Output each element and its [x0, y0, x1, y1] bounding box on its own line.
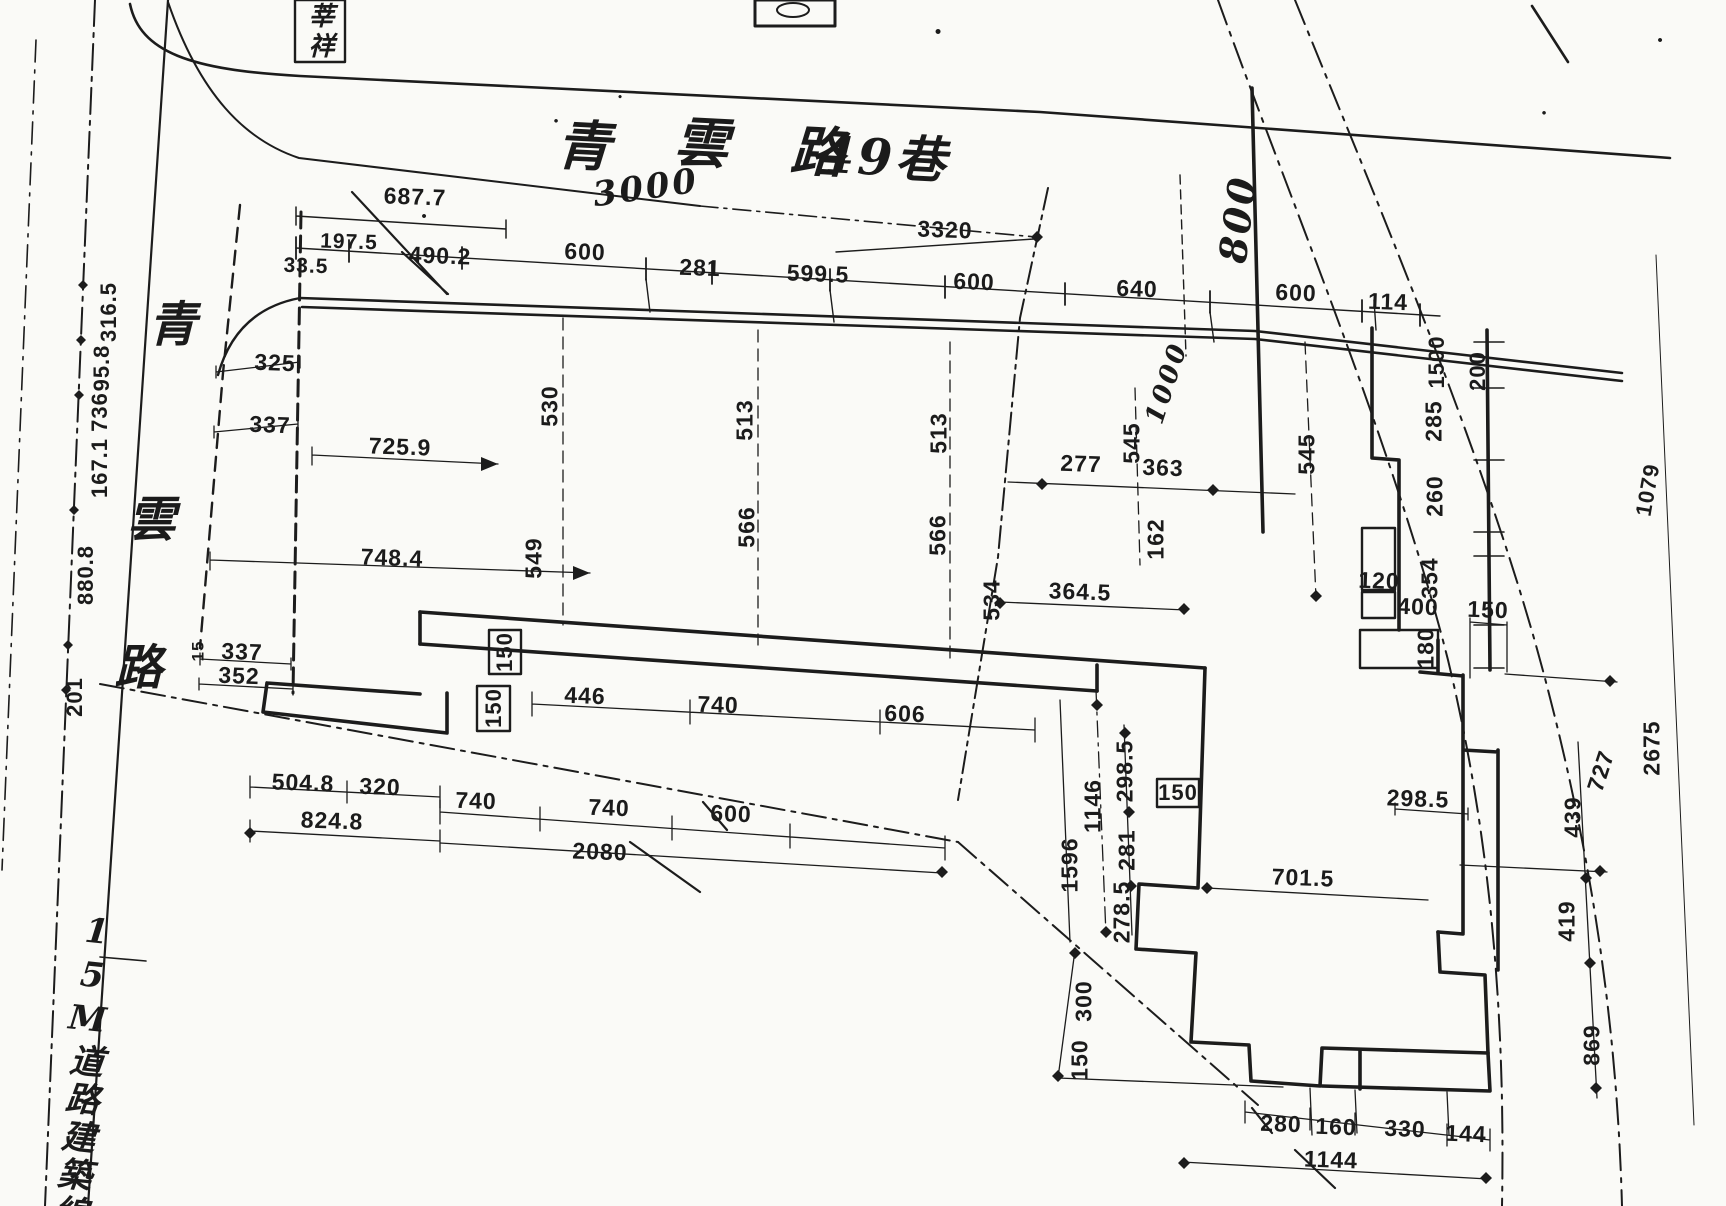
dim-285: 285 [1423, 400, 1446, 441]
dim-600-d: 600 [710, 802, 752, 826]
lane-name-char-4: 49巷 [818, 130, 949, 187]
corner-box-text: 莘祥 [306, 2, 332, 62]
dim-364-5: 364.5 [1048, 579, 1111, 604]
dim-566-a: 566 [736, 506, 759, 547]
dim-740-a: 740 [697, 693, 739, 717]
dim-160: 160 [1315, 1115, 1357, 1139]
dim-513-b: 513 [928, 412, 951, 453]
dim-748-4: 748.4 [360, 545, 423, 570]
road-name-char-1: 青 [148, 301, 199, 349]
dim-144: 144 [1445, 1122, 1487, 1146]
dim-281-b: 281 [1116, 829, 1139, 870]
dim-1000: 1000 [1142, 339, 1193, 427]
dim-325: 325 [254, 351, 296, 375]
dim-640: 640 [1116, 277, 1158, 301]
dim-330: 330 [1384, 1117, 1426, 1141]
road-name-char-3: 路 [114, 644, 165, 692]
site-plan-scan: 青雲路49巷30008001000青雲路莘祥15M道路建築線687.7197.5… [0, 0, 1726, 1206]
dim-400: 400 [1397, 595, 1439, 619]
dim-150-e: 150 [1467, 598, 1509, 622]
dim-150-box-c: 150 [1158, 782, 1198, 804]
dim-701-5: 701.5 [1271, 865, 1334, 890]
dim-549: 549 [523, 537, 546, 578]
dim-120: 120 [1358, 569, 1400, 593]
dim-180: 180 [1415, 627, 1438, 668]
dim-1144: 1144 [1304, 1148, 1359, 1173]
dim-530: 530 [539, 385, 562, 426]
dim-278-5: 278.5 [1111, 881, 1134, 944]
dim-298-5-b: 298.5 [1386, 786, 1449, 811]
dim-150-d: 150 [1069, 1039, 1092, 1080]
dim-150-box-b: 150 [483, 688, 505, 728]
dim-33-5: 33.5 [283, 255, 329, 278]
dim-337-b: 337 [221, 640, 263, 664]
dim-725-9: 725.9 [368, 434, 431, 459]
dim-298-5-a: 298.5 [1114, 740, 1137, 803]
dim-534: 534 [981, 579, 1004, 620]
dim-600-b: 600 [953, 270, 995, 294]
dim-162: 162 [1145, 518, 1168, 559]
dim-687-7: 687.7 [383, 184, 446, 209]
dim-727: 727 [1584, 748, 1619, 794]
dim-504-8: 504.8 [271, 770, 334, 795]
dim-419: 419 [1556, 900, 1579, 941]
dim-2675: 2675 [1641, 720, 1664, 775]
dim-869: 869 [1581, 1024, 1604, 1065]
dim-280: 280 [1260, 1112, 1302, 1136]
road-name-char-2: 雲 [127, 496, 178, 544]
dim-300: 300 [1073, 980, 1096, 1021]
dim-599-5: 599.5 [786, 261, 849, 286]
dim-352: 352 [218, 664, 260, 688]
dim-316-5: 316.5 [98, 282, 120, 342]
road-building-line-text: 15M道路建築線 [48, 910, 115, 1206]
dim-197-5: 197.5 [320, 231, 378, 254]
dim-800: 800 [1214, 173, 1262, 265]
dim-606: 606 [884, 702, 926, 726]
dim-439: 439 [1562, 796, 1585, 837]
dimension-labels-layer: 青雲路49巷30008001000青雲路莘祥15M道路建築線687.7197.5… [0, 0, 1726, 1206]
dim-600-c: 600 [1275, 281, 1317, 305]
dim-354: 354 [1419, 557, 1442, 598]
dim-15: 15 [190, 641, 207, 662]
dim-880-8: 880.8 [75, 545, 97, 605]
dim-513-a: 513 [734, 399, 757, 440]
dim-337-a: 337 [249, 413, 291, 437]
dim-200: 200 [1467, 351, 1489, 391]
dim-2080: 2080 [572, 840, 628, 865]
dim-277: 277 [1060, 452, 1102, 476]
dim-740-c: 740 [588, 796, 630, 820]
dim-201: 201 [64, 677, 86, 717]
dim-114: 114 [1368, 290, 1409, 314]
dim-545-b: 545 [1296, 433, 1319, 474]
dim-363: 363 [1142, 456, 1184, 480]
dim-490-2: 490.2 [408, 243, 471, 268]
dim-1146: 1146 [1082, 779, 1105, 833]
dim-736: 736 [89, 392, 111, 432]
dim-1079: 1079 [1633, 462, 1664, 518]
dim-281-a: 281 [679, 256, 721, 280]
dim-600-a: 600 [564, 240, 606, 264]
dim-740-b: 740 [455, 789, 497, 813]
dim-566-b: 566 [927, 514, 950, 555]
lane-name-char-1: 青 [555, 118, 615, 175]
dim-150-box-a: 150 [494, 632, 516, 672]
dim-824-8: 824.8 [300, 808, 363, 833]
dim-545-a: 545 [1121, 422, 1144, 463]
dim-3320: 3320 [917, 218, 973, 243]
dim-260: 260 [1424, 475, 1447, 516]
dim-320: 320 [359, 775, 401, 799]
dim-95-8: 95.8 [91, 345, 113, 392]
dim-1596: 1596 [1059, 837, 1082, 892]
dim-1500: 1500 [1426, 336, 1448, 389]
dim-446: 446 [564, 684, 606, 708]
dim-167-1: 167.1 [89, 438, 111, 498]
